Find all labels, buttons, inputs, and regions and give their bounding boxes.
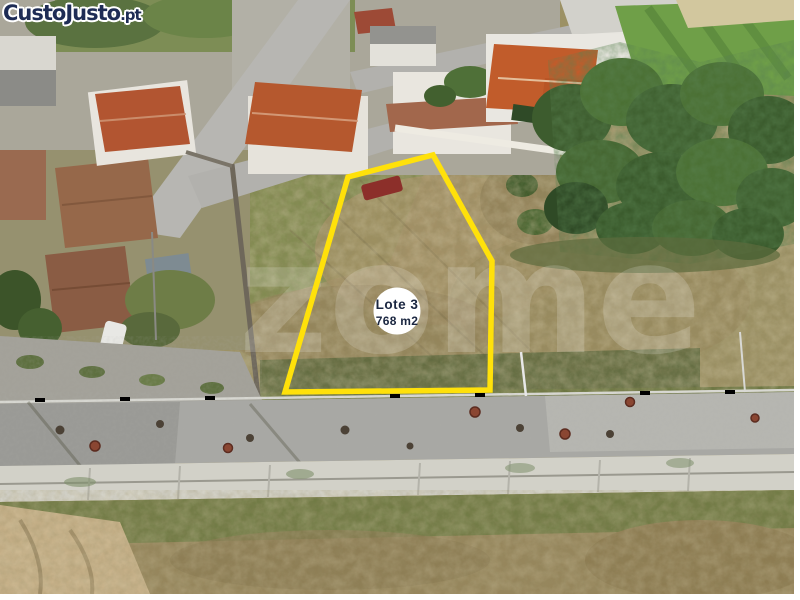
brand-tld: .pt: [120, 6, 141, 24]
plot-name: Lote 3: [376, 297, 419, 312]
brand-logo: CustoJusto.pt: [3, 1, 141, 25]
aerial-photo: zome Lote 3 768 m2: [0, 0, 800, 600]
listing-photo-frame: zome Lote 3 768 m2 CustoJusto.pt: [0, 0, 800, 600]
watermark-zome: zome: [238, 208, 701, 389]
plot-area: 768 m2: [376, 314, 419, 328]
plot-badge: Lote 3 768 m2: [374, 288, 421, 335]
brand-name: CustoJusto: [3, 1, 120, 25]
bottom-verge: [0, 490, 800, 600]
